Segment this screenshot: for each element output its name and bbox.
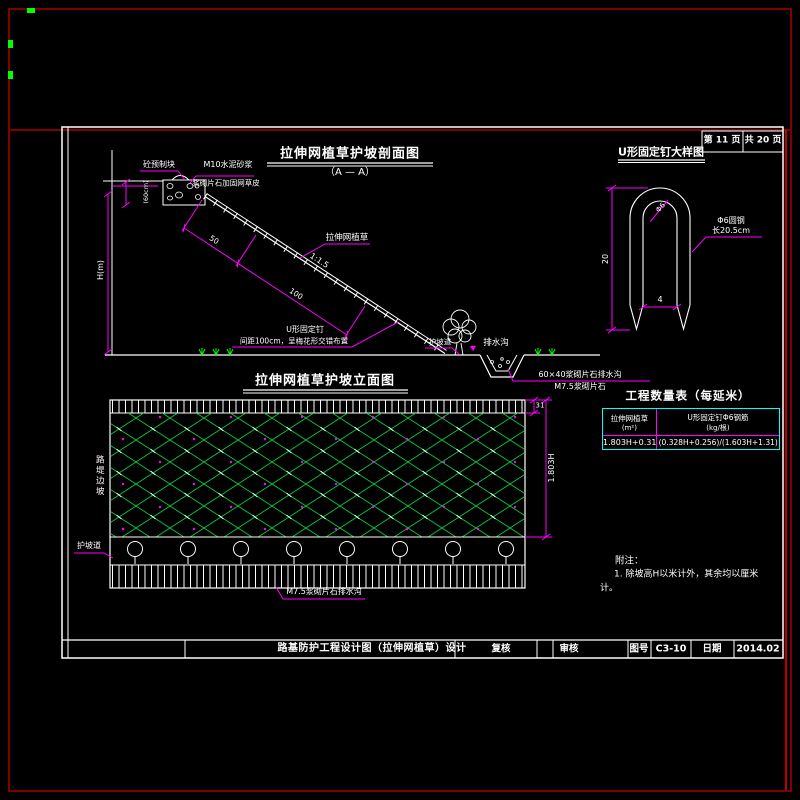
qtable-value-col1: 1.803H+0.31: [603, 436, 657, 449]
qtable-header-col2: U形固定钉Φ6钢筋 (kg/根): [657, 409, 779, 435]
ditch-label: 排水沟: [483, 339, 509, 348]
detail-view-title: U形固定钉大样图: [618, 147, 704, 158]
section-view-subtitle: （A — A）: [325, 168, 375, 178]
page-number: 第 11 页: [704, 137, 741, 146]
block-height-dim: (60cm): [143, 180, 150, 203]
u-pin-label: U形固定钉: [286, 326, 324, 334]
drawing-no-label: 图号: [629, 644, 648, 654]
ditch-spec-label: 60×40浆砌片石排水沟: [538, 371, 621, 379]
sheet-title: 路基防护工程设计图（拉伸网植草）设计: [278, 644, 467, 654]
detail-material-2: 长20.5cm: [712, 227, 750, 235]
dim-slope: [182, 200, 365, 339]
date-value: 2014.02: [736, 644, 779, 654]
elev-dim-side: 1.803H: [548, 454, 556, 483]
elevation-view-linework: [74, 390, 552, 599]
slope-height-dim: H(m): [97, 260, 105, 280]
page-total: 共 20 页: [745, 137, 782, 146]
notes-line-1: 1. 除坡高H以米计外，其余均以厘米: [614, 571, 758, 580]
check-label: 复核: [491, 644, 510, 654]
mesh-label: 拉伸网植草: [326, 234, 369, 243]
precast-block-label: 砼预制块: [143, 161, 175, 169]
tree-row: [128, 542, 514, 565]
ditch-material-label: M7.5浆砌片石: [554, 383, 606, 391]
quantity-table: 拉伸网植草 (m²) U形固定钉Φ6钢筋 (kg/根) 1.803H+0.31 …: [602, 408, 780, 450]
dim-H: [104, 191, 112, 355]
dim-60cm: [122, 179, 130, 208]
detail-dim-width: 4: [657, 296, 662, 304]
mortar-label: M10水泥砂浆: [203, 161, 252, 169]
section-view-linework: [103, 150, 650, 381]
drawing-no-value: C3-10: [656, 644, 687, 654]
berm-label: 护坡道: [429, 338, 452, 346]
elev-ditch-label: M7.5浆砌片石排水沟: [286, 588, 362, 596]
registration-mark: [27, 8, 35, 13]
detail-dim-height: 20: [602, 254, 610, 264]
quantity-table-title: 工程数量表（每延米）: [626, 390, 751, 402]
section-view-title: 拉伸网植草护坡剖面图: [280, 148, 420, 161]
u-pin-note: 间距100cm，呈梅花形交错布置: [240, 337, 348, 345]
notes-line-2: 计。: [600, 585, 618, 594]
review-label: 审核: [559, 644, 578, 654]
grass-icon: [199, 348, 555, 355]
detail-view-linework: [606, 160, 762, 333]
detail-material-1: Φ6圆钢: [717, 217, 744, 225]
elev-dim-top: 31: [536, 403, 545, 410]
masonry-label: 浆砌片石加固网草皮: [192, 179, 260, 187]
registration-mark: [8, 71, 13, 79]
detail-dims: [606, 185, 762, 333]
elevation-view-title: 拉伸网植草护坡立面图: [255, 375, 395, 388]
date-label: 日期: [702, 644, 721, 654]
cad-drawing-sheet: 第 11 页 共 20 页 拉伸网植草护坡剖面图 （A — A） 砼预制块 M1…: [0, 0, 800, 800]
qtable-value-col2: (0.328H+0.256)/(1.603H+1.31): [657, 436, 779, 449]
elev-left-label: 路堤边坡: [95, 455, 104, 497]
elev-berm-label: 护坡道: [77, 542, 101, 550]
notes-heading: 附注：: [615, 556, 644, 566]
registration-mark: [8, 40, 13, 48]
qtable-header-col1: 拉伸网植草 (m²): [603, 409, 657, 435]
